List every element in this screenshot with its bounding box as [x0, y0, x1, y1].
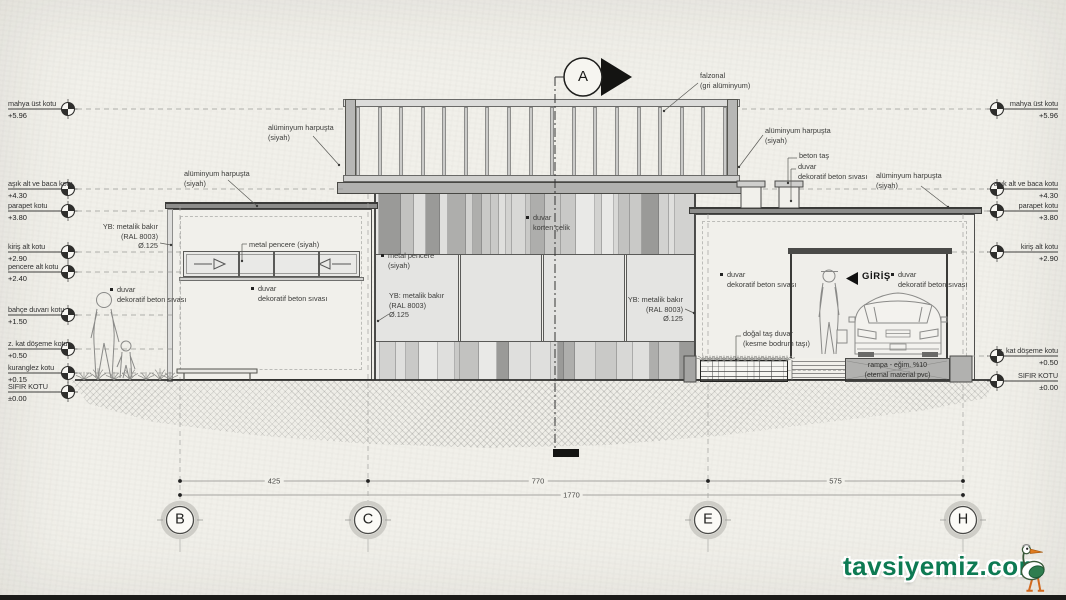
watermark-text: tavsiyemiz.com	[843, 551, 1042, 581]
annotation-line: YB: metalik bakır	[628, 295, 683, 305]
level-label: bahçe duvarı kotu	[8, 305, 64, 314]
annotation-alu-harpusta-left-bldg: alüminyum harpuşta(siyah)	[184, 169, 250, 188]
level-label: aşık alt ve baca kotu	[8, 179, 72, 188]
annotation-line: Ø.125	[389, 310, 444, 320]
grid-bubble-letter: H	[958, 512, 968, 528]
level-label: kuranglez kotu	[8, 363, 54, 372]
annotation-line: (siyah)	[765, 136, 831, 146]
annotation-duvar-baca: duvardekoratif beton sıvası	[798, 162, 867, 181]
annotation-line: Ø.125	[103, 241, 158, 251]
annotation-yb-bakir-left: YB: metalik bakır(RAL 8003)Ø.125	[103, 222, 158, 251]
annotation-duvar-sag-ust: duvardekoratif beton sıvası	[727, 270, 796, 289]
annotation-duvar-sol-dis: duvardekoratif beton sıvası	[117, 285, 186, 304]
level-label: parapet kotu	[8, 201, 47, 210]
level-value: +5.96	[938, 111, 1058, 120]
annotation-yb-bakir-sag: YB: metalik bakır(RAL 8003)Ø.125	[628, 295, 683, 324]
annotation-line: duvar	[898, 270, 967, 280]
annotation-line: (siyah)	[876, 181, 942, 191]
annotation-line: dekoratif beton sıvası	[258, 294, 327, 304]
ramp-label: rampa - eğim. %10 (eternal material pvc)	[845, 361, 950, 381]
annotation-line: (kesme bodrum taşı)	[743, 339, 810, 349]
annotation-line: (siyah)	[184, 179, 250, 189]
annotation-dogal-tas: doğal taş duvar(kesme bodrum taşı)	[743, 329, 810, 348]
annotation-line: duvar	[798, 162, 867, 172]
annotation-line: alüminyum harpuşta	[184, 169, 250, 179]
level-label: SIFIR KOTU	[938, 371, 1058, 380]
level-label: kiriş alt kotu	[8, 242, 45, 251]
annotation-line: dekoratif beton sıvası	[798, 172, 867, 182]
annotation-bullet	[251, 287, 254, 290]
annotation-line: metal pencere	[388, 251, 434, 261]
grid-bubble-letter: C	[363, 512, 373, 528]
annotation-line: alüminyum harpuşta	[268, 123, 334, 133]
annotation-beton-tas: beton taş	[799, 151, 829, 161]
level-value: +3.80	[938, 213, 1058, 222]
annotation-line: duvar	[533, 213, 570, 223]
annotation-bullet	[720, 273, 723, 276]
level-value: +4.30	[938, 191, 1058, 200]
annotation-line: metal pencere (siyah)	[249, 240, 319, 250]
watermark: tavsiyemiz.com	[843, 551, 1042, 582]
annotation-line: beton taş	[799, 151, 829, 161]
annotation-line: YB: metalik bakır	[389, 291, 444, 301]
level-value: +0.50	[8, 351, 27, 360]
annotation-line: alüminyum harpuşta	[876, 171, 942, 181]
level-label: mahya üst kotu	[938, 99, 1058, 108]
level-label: kiriş alt kotu	[938, 242, 1058, 251]
annotation-line: doğal taş duvar	[743, 329, 810, 339]
annotation-bullet	[891, 273, 894, 276]
level-value: +2.90	[938, 254, 1058, 263]
level-label: z. kat döşeme kotu	[8, 339, 67, 348]
annotation-line: (RAL 8003)	[389, 301, 444, 311]
scan-edge	[0, 595, 1066, 600]
annotation-alu-harpusta-rail-right: alüminyum harpuşta(siyah)	[765, 126, 831, 145]
elevation-drawing-canvas: A GİRİŞ rampa - eğim. %10 (eternal mater…	[0, 0, 1066, 600]
dimension-value: 575	[826, 477, 845, 486]
annotation-falzonal: falzonal(gri alüminyum)	[700, 71, 750, 90]
annotation-line: duvar	[727, 270, 796, 280]
label-layer: A GİRİŞ rampa - eğim. %10 (eternal mater…	[0, 0, 1066, 600]
annotation-bullet	[526, 216, 529, 219]
annotation-bullet	[381, 254, 384, 257]
annotation-line: (siyah)	[268, 133, 334, 143]
annotation-line: dekoratif beton sıvası	[898, 280, 967, 290]
section-marker-letter: A	[578, 68, 588, 85]
grid-bubble-letter: B	[175, 512, 185, 528]
annotation-line: (RAL 8003)	[628, 305, 683, 315]
annotation-line: korten çelik	[533, 223, 570, 233]
annotation-duvar-sol-bina: duvardekoratif beton sıvası	[258, 284, 327, 303]
annotation-metal-pencere-left: metal pencere (siyah)	[249, 240, 319, 250]
level-label: aşık alt ve baca kotu	[938, 179, 1058, 188]
level-value: +4.30	[8, 191, 27, 200]
level-value: +1.50	[8, 317, 27, 326]
annotation-line: Ø.125	[628, 314, 683, 324]
grid-bubble-letter: E	[703, 512, 713, 528]
annotation-line: (gri alüminyum)	[700, 81, 750, 91]
annotation-line: falzonal	[700, 71, 750, 81]
entrance-label: GİRİŞ	[862, 271, 891, 282]
annotation-duvar-giris: duvardekoratif beton sıvası	[898, 270, 967, 289]
dimension-value: 425	[265, 477, 284, 486]
level-label: SIFIR KOTU	[8, 382, 48, 391]
annotation-bullet	[110, 288, 113, 291]
level-value: ±0.00	[938, 383, 1058, 392]
annotation-alu-harpusta-rail-left: alüminyum harpuşta(siyah)	[268, 123, 334, 142]
annotation-yb-bakir-orta: YB: metalik bakır(RAL 8003)Ø.125	[389, 291, 444, 320]
annotation-line: dekoratif beton sıvası	[727, 280, 796, 290]
annotation-line: (RAL 8003)	[103, 232, 158, 242]
watermark-bird-icon	[1016, 544, 1052, 592]
annotation-line: duvar	[117, 285, 186, 295]
annotation-metal-pencere-orta: metal pencere(siyah)	[388, 251, 434, 270]
annotation-line: YB: metalik bakır	[103, 222, 158, 232]
annotation-line: alüminyum harpuşta	[765, 126, 831, 136]
level-value: ±0.00	[8, 394, 27, 403]
level-label: z. kat döşeme kotu	[938, 346, 1058, 355]
level-value: +0.50	[938, 358, 1058, 367]
level-label: mahya üst kotu	[8, 99, 56, 108]
annotation-duvar-korten: duvarkorten çelik	[533, 213, 570, 232]
annotation-line: duvar	[258, 284, 327, 294]
dimension-value: 770	[529, 477, 548, 486]
dimension-total-value: 1770	[560, 491, 583, 500]
level-value: +5.96	[8, 111, 27, 120]
level-value: +2.40	[8, 274, 27, 283]
annotation-line: dekoratif beton sıvası	[117, 295, 186, 305]
level-value: +3.80	[8, 213, 27, 222]
ramp-label-line2: (eternal material pvc)	[865, 372, 931, 379]
ramp-label-line1: rampa - eğim. %10	[868, 362, 927, 369]
level-label: pencere alt kotu	[8, 262, 58, 271]
annotation-line: (siyah)	[388, 261, 434, 271]
level-label: parapet kotu	[938, 201, 1058, 210]
annotation-alu-harpusta-sag-bina: alüminyum harpuşta(siyah)	[876, 171, 942, 190]
